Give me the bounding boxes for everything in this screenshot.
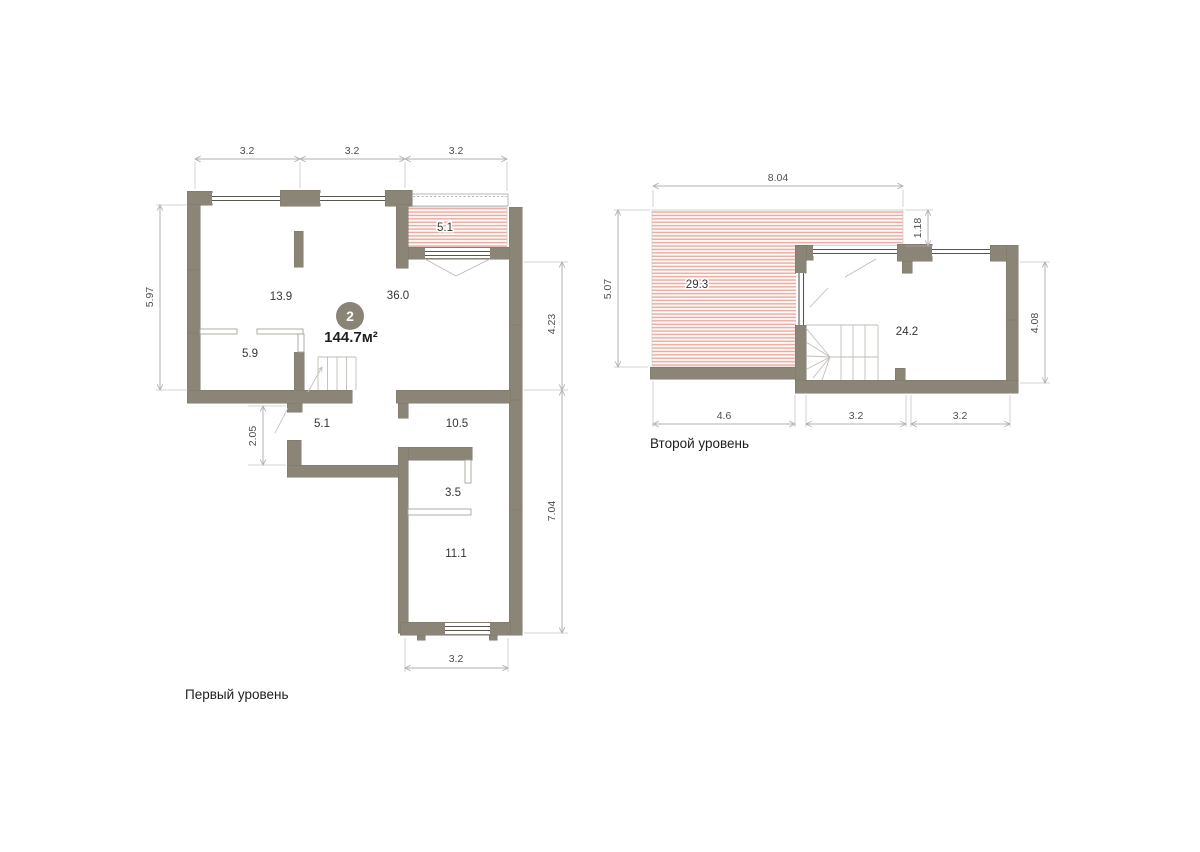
dim-label-l1-hall-left: 2.05 bbox=[247, 426, 259, 447]
dim-label-l2-left: 5.07 bbox=[602, 279, 614, 300]
dim-label-l1-top-3: 3.2 bbox=[449, 145, 464, 157]
level1-caption: Первый уровень bbox=[185, 687, 289, 702]
terrace-door-swing bbox=[845, 259, 876, 277]
dim-label-l1-right-lower: 7.04 bbox=[546, 501, 558, 522]
dim-label-l2-bottom-2: 3.2 bbox=[849, 410, 864, 422]
level2-caption: Второй уровень bbox=[650, 436, 749, 451]
stairs-direction-arrow bbox=[308, 367, 322, 392]
level1-stairs bbox=[308, 357, 356, 392]
level2-stairs bbox=[806, 325, 878, 380]
room-label-room-111: 11.1 bbox=[445, 548, 467, 560]
dim-label-l2-bottom-3: 3.2 bbox=[953, 410, 968, 422]
room-label-room-small: 5.9 bbox=[242, 348, 258, 360]
level2-windows bbox=[796, 246, 990, 325]
dim-label-l2-right: 4.08 bbox=[1029, 313, 1041, 334]
room-label-wardrobe: 3.5 bbox=[445, 487, 461, 499]
room-label-terrace-l1: 5.1 bbox=[437, 222, 453, 234]
dim-label-l1-right-upper: 4.23 bbox=[546, 314, 558, 335]
terrace-railing bbox=[408, 194, 508, 206]
room-label-kitchen-living: 36.0 bbox=[387, 290, 409, 302]
unit-number: 2 bbox=[346, 308, 354, 324]
room-label-room-l2: 24.2 bbox=[896, 326, 918, 338]
floorplan-canvas: 3.2 3.2 3.2 5.97 2.05 4.23 7.04 bbox=[0, 0, 1200, 852]
room-label-terrace-l2: 29.3 bbox=[686, 279, 708, 291]
floorplan-page: 3.2 3.2 3.2 5.97 2.05 4.23 7.04 bbox=[0, 0, 1200, 852]
dim-label-l2-top: 8.04 bbox=[768, 172, 789, 184]
dim-label-l1-top-2: 3.2 bbox=[345, 145, 360, 157]
terrace-hatch-area bbox=[408, 207, 507, 247]
dim-label-l2-bottom-1: 4.6 bbox=[717, 410, 732, 422]
stair-leader-line bbox=[810, 288, 828, 307]
unit-area: 144.7м² bbox=[324, 329, 378, 346]
dim-label-l1-top-1: 3.2 bbox=[240, 145, 255, 157]
dim-label-l1-left: 5.97 bbox=[144, 287, 156, 308]
room-label-living: 13.9 bbox=[270, 291, 292, 303]
dim-label-l1-bottom: 3.2 bbox=[449, 653, 464, 665]
unit-number-badge: 2 bbox=[336, 302, 364, 330]
level1-plan: 3.2 3.2 3.2 5.97 2.05 4.23 7.04 bbox=[144, 145, 568, 702]
level1-terrace bbox=[408, 194, 508, 247]
level2-plan: 8.04 1.18 5.07 4.08 4. bbox=[602, 172, 1050, 451]
hall-door-swing bbox=[275, 408, 288, 433]
room-label-hall: 5.1 bbox=[314, 418, 330, 430]
room-label-room-105: 10.5 bbox=[446, 418, 468, 430]
dim-label-l2-terrace-right: 1.18 bbox=[912, 218, 924, 239]
